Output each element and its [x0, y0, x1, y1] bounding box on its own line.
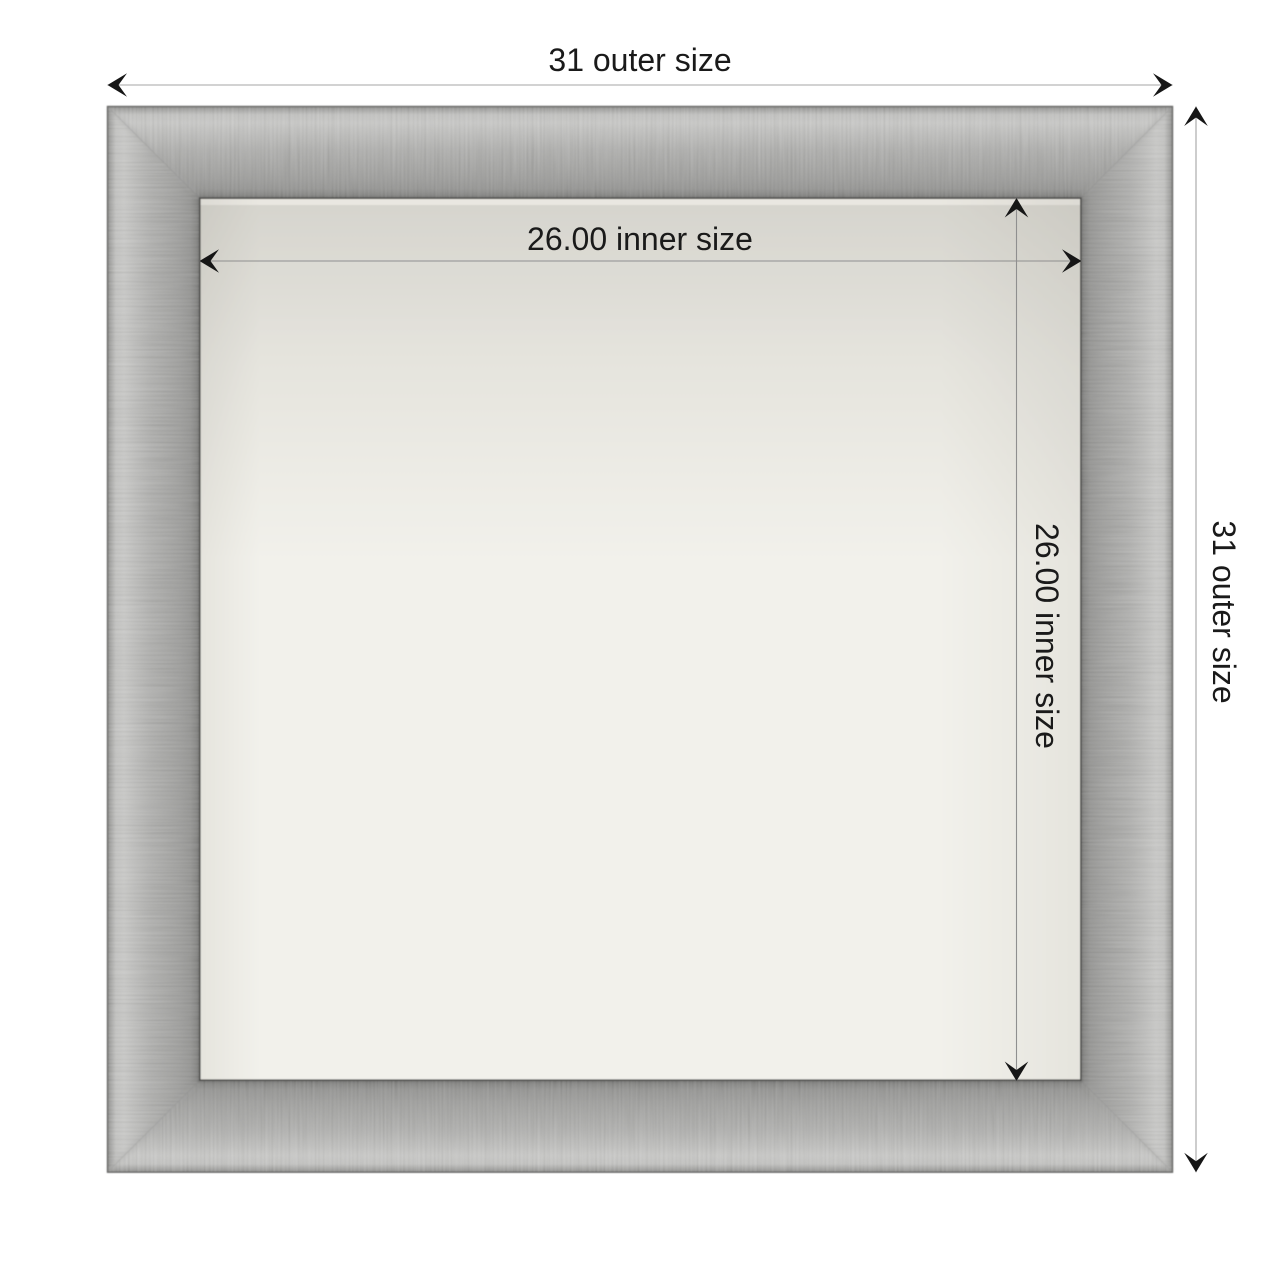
svg-text:26.00 inner size: 26.00 inner size [1029, 523, 1065, 749]
svg-text:31 outer size: 31 outer size [1206, 520, 1242, 703]
svg-text:26.00 inner size: 26.00 inner size [527, 221, 753, 257]
svg-text:31 outer size: 31 outer size [548, 42, 731, 78]
